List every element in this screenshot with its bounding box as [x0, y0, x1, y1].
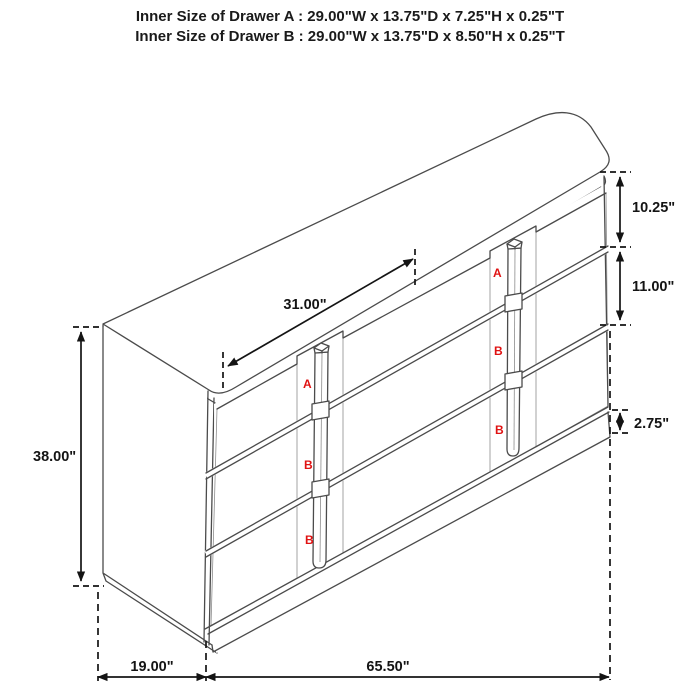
dresser-drawing: A B B A B B: [103, 113, 610, 653]
dim-base-height-label: 2.75": [634, 416, 669, 432]
right-drawer-b1-label: B: [494, 344, 503, 358]
dim-overall-width-label: 65.50": [366, 659, 409, 675]
right-drawer-b2-label: B: [495, 423, 504, 437]
bottom-dimensions: 19.00" 65.50": [98, 641, 609, 681]
dim-top-drawer-height-label: 10.25": [632, 200, 675, 216]
dim-middle-drawer-height-label: 11.00": [632, 279, 674, 295]
dresser-line-drawing: A B B A B B 31.00" 10.25" 11.00" 2.: [0, 0, 700, 700]
dim-overall-depth-label: 19.00": [130, 659, 173, 675]
left-drawer-b1-label: B: [304, 458, 313, 472]
left-drawer-handle: [312, 343, 329, 568]
dim-overall-height-label: 38.00": [33, 449, 76, 465]
left-height-dimension: 38.00": [33, 327, 104, 681]
left-drawer-a-label: A: [303, 377, 312, 391]
left-drawer-b2-label: B: [305, 533, 314, 547]
dim-drawer-column-width-label: 31.00": [283, 297, 326, 313]
product-dimension-diagram: Inner Size of Drawer A : 29.00"W x 13.75…: [0, 0, 700, 700]
right-drawer-a-label: A: [493, 266, 502, 280]
right-dimension-stack: 10.25" 11.00" 2.75": [600, 172, 675, 680]
right-drawer-handle: [505, 239, 522, 456]
